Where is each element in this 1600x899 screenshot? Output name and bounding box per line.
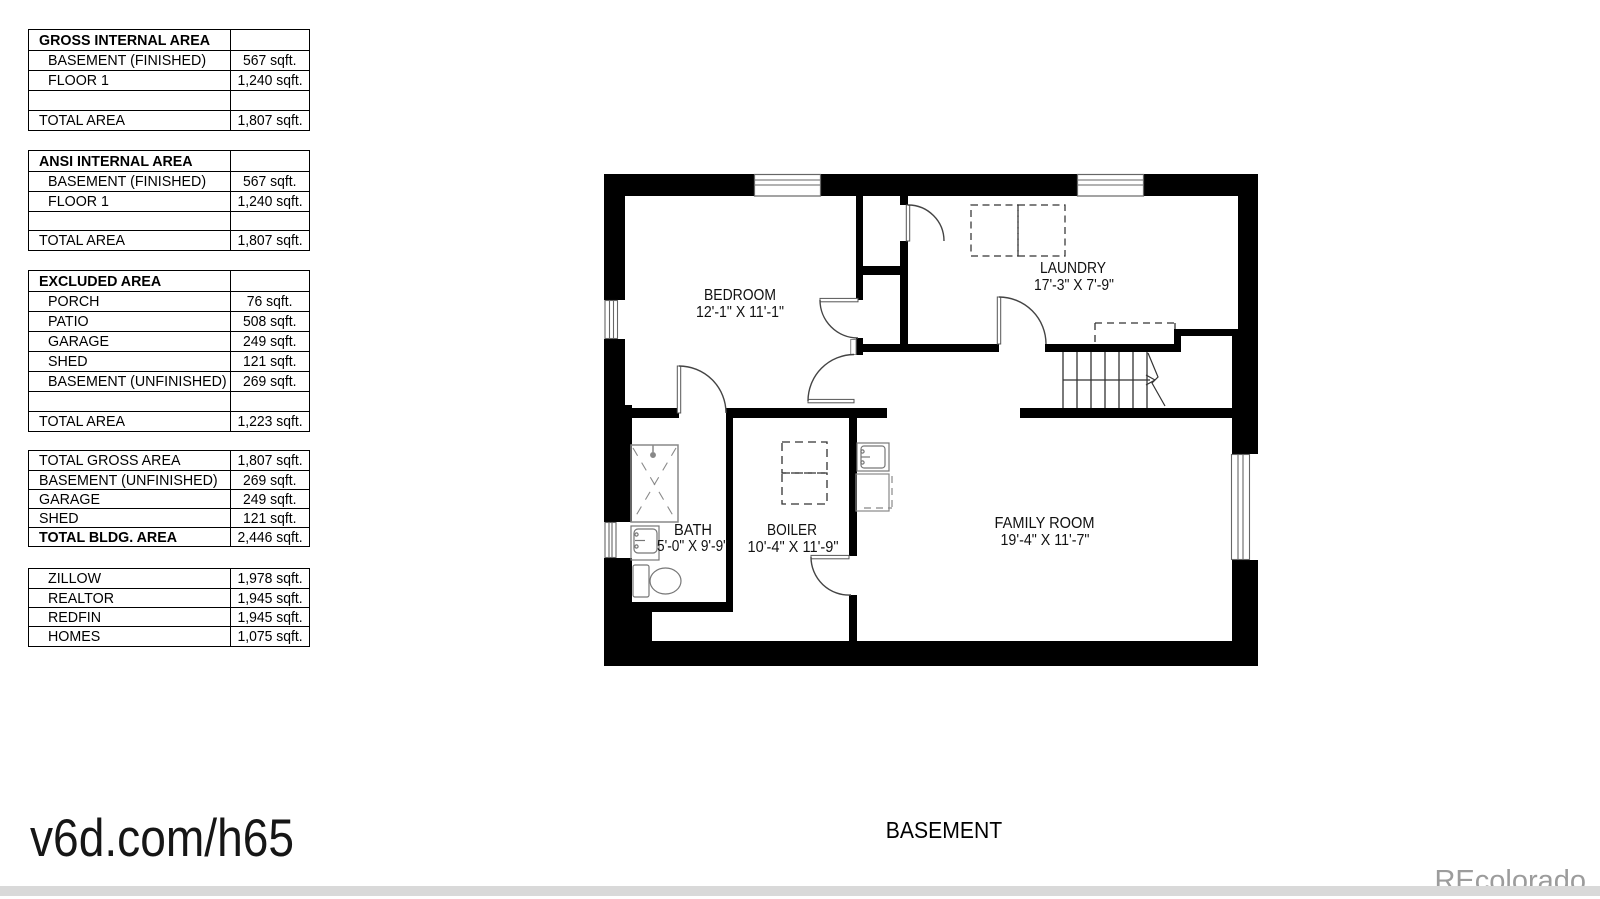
svg-text:10'-4" X 11'-9": 10'-4" X 11'-9"	[748, 539, 839, 556]
svg-text:5'-0" X 9'-9": 5'-0" X 9'-9"	[657, 538, 728, 555]
svg-text:BEDROOM: BEDROOM	[704, 287, 776, 304]
svg-text:19'-4" X 11'-7": 19'-4" X 11'-7"	[1001, 532, 1090, 549]
svg-text:BATH: BATH	[674, 522, 712, 539]
svg-text:17'-3" X 7'-9": 17'-3" X 7'-9"	[1034, 277, 1114, 294]
svg-text:BOILER: BOILER	[767, 522, 817, 539]
svg-text:FAMILY ROOM: FAMILY ROOM	[995, 515, 1095, 532]
svg-text:12'-1" X 11'-1": 12'-1" X 11'-1"	[696, 304, 784, 321]
svg-text:LAUNDRY: LAUNDRY	[1040, 260, 1106, 277]
